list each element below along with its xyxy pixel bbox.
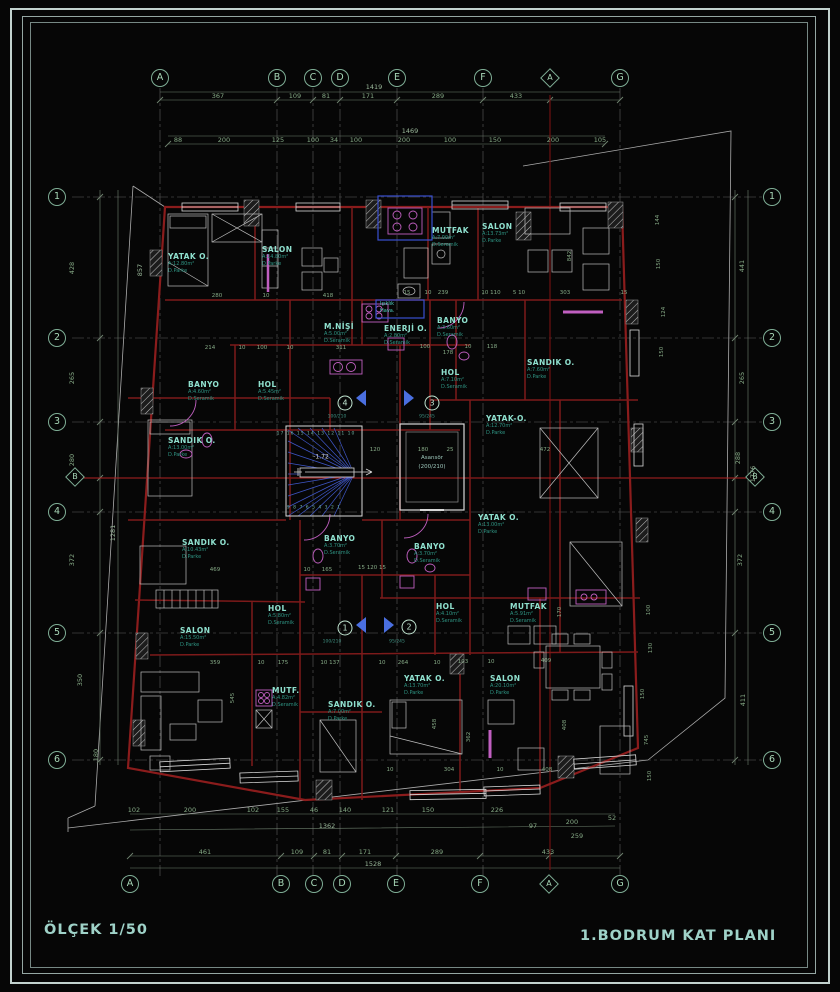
axis-left-3: 3 bbox=[48, 413, 66, 431]
room-label-mutf-bl: MUTF.A:4.82m²D.Seramik bbox=[272, 686, 300, 708]
dim: 52 bbox=[608, 814, 616, 822]
dim: 144 bbox=[655, 215, 661, 226]
dim: 125 bbox=[272, 136, 284, 144]
dim: 88 bbox=[174, 136, 182, 144]
axis-right-4: 4 bbox=[763, 503, 781, 521]
dim: 372 bbox=[68, 554, 76, 566]
dim: 469 bbox=[210, 567, 221, 573]
dim: 178 bbox=[443, 350, 454, 356]
axis-top-d: D bbox=[331, 69, 349, 87]
dim: 10 bbox=[434, 660, 441, 666]
dim: 102 bbox=[128, 806, 140, 814]
dim: 200 bbox=[398, 136, 410, 144]
dim: 239 bbox=[438, 290, 449, 296]
room-label-yatak-bc: YATAK O.A:13.70m²D.Parke bbox=[404, 674, 445, 696]
dim: 180 bbox=[92, 749, 100, 761]
scale-label: ÖLÇEK 1/50 bbox=[44, 922, 148, 938]
door-tag: 100/210 bbox=[328, 415, 347, 420]
dim: 359 bbox=[210, 660, 221, 666]
dim: 10 bbox=[379, 660, 386, 666]
room-label-banyo-tr: BANYOA:3.60m²D.Seramik bbox=[437, 316, 468, 338]
dim: 280 bbox=[68, 454, 76, 466]
room-label-mutfak-br: MUTFAKA:5.91m²D.Seramik bbox=[510, 602, 547, 624]
room-label-hol-br: HOLA:4.10m²D.Seramik bbox=[436, 602, 462, 624]
dim: 265 bbox=[738, 372, 746, 384]
room-label-sandik-bc: SANDIK O.A:7.00m²D.Parke bbox=[328, 700, 376, 722]
dim: 362 bbox=[466, 732, 472, 743]
drawing-sheet: A B C D E F A G A B C D E F A G 1 2 3 B … bbox=[0, 0, 840, 992]
dim: 124 bbox=[661, 307, 667, 318]
room-label-sandik-ml: SANDIK O.A:13.00m²D.Parke bbox=[168, 436, 216, 458]
door-tag: 95/245 bbox=[419, 415, 435, 420]
unit-circle-4: 4 bbox=[338, 396, 353, 411]
dim: 15 bbox=[621, 290, 628, 296]
room-label-hol-r: HOLA:7.10m²D.Seramik bbox=[441, 368, 467, 390]
dim: 150 bbox=[656, 259, 662, 270]
dim: 433 bbox=[510, 92, 522, 100]
room-label-sandik-r: SANDIK O.A:7.60m²D.Parke bbox=[527, 358, 575, 380]
stair-numbers-top: 17 16 15 14 13 12 11 10 bbox=[277, 432, 356, 437]
dim: 458 bbox=[432, 719, 438, 730]
dim: 10 bbox=[263, 293, 270, 299]
dim: 10 bbox=[239, 345, 246, 351]
dim: 120 bbox=[370, 447, 381, 453]
axis-left-1: 1 bbox=[48, 188, 66, 206]
door-arrows bbox=[356, 390, 414, 633]
dim: 280 bbox=[212, 293, 223, 299]
dim-total: 1528 bbox=[365, 860, 382, 868]
dim: 461 bbox=[199, 848, 211, 856]
dimension-lines bbox=[97, 92, 748, 868]
dim: 350 bbox=[76, 674, 84, 686]
room-label-banyo-l: BANYOA:4.60m²D.Seramik bbox=[188, 380, 219, 402]
room-label-salon-t: SALONA:14.80m²D.Parke bbox=[262, 245, 292, 267]
dim: 472 bbox=[540, 447, 551, 453]
room-label-salon-tr: SALONA:13.73m²D.Parke bbox=[482, 222, 512, 244]
dim: 150 bbox=[647, 771, 653, 782]
room-label-mutfak-t: MUTFAKA:7.00m²D.Seramik bbox=[432, 226, 469, 248]
room-label-banyo-c2: BANYOA:3.70m²D.Seramik bbox=[414, 542, 445, 564]
page-title: 1.BODRUM KAT PLANI bbox=[580, 928, 776, 944]
room-label-banyo-c1: BANYOA:3.70m²D.Seramik bbox=[324, 534, 355, 556]
dim: 311 bbox=[336, 345, 347, 351]
dim: 81 bbox=[322, 92, 330, 100]
dim: 372 bbox=[736, 554, 744, 566]
dim: 10 137 bbox=[320, 660, 339, 666]
elevator-label: Asansör bbox=[421, 455, 443, 461]
axis-top-a: A bbox=[151, 69, 169, 87]
dim: 408 bbox=[542, 767, 553, 773]
dim-total: 1469 bbox=[402, 127, 419, 135]
room-label-hol-bl: HOLA:5.80m²D.Seramik bbox=[268, 604, 294, 626]
axis-bottom-c: C bbox=[305, 875, 323, 893]
dim: 226 bbox=[491, 806, 503, 814]
unit-circle-3: 3 bbox=[425, 396, 440, 411]
room-label-mnisi: M.NİŞİA:5.00m²D.Seramik bbox=[324, 322, 354, 344]
dim: 303 bbox=[560, 290, 571, 296]
dim: 10 bbox=[465, 344, 472, 350]
dim: 10 bbox=[497, 767, 504, 773]
dim: 150 bbox=[640, 689, 646, 700]
dim: 5 10 bbox=[513, 290, 525, 296]
dim: 10 bbox=[425, 290, 432, 296]
dim: 409 bbox=[541, 658, 552, 664]
dim: 171 bbox=[362, 92, 374, 100]
axis-right-6: 6 bbox=[763, 751, 781, 769]
dim: 10 bbox=[304, 567, 311, 573]
dim: 180 bbox=[418, 447, 429, 453]
dim: 200 bbox=[547, 136, 559, 144]
dim: 155 bbox=[277, 806, 289, 814]
dim: 100 bbox=[307, 136, 319, 144]
dim: 842 bbox=[567, 251, 573, 262]
dim: 10 bbox=[387, 767, 394, 773]
dim: 100 bbox=[350, 136, 362, 144]
axis-top-b: B bbox=[268, 69, 286, 87]
dim: 10 bbox=[488, 659, 495, 665]
dim: 150 bbox=[659, 347, 665, 358]
dim: 200 bbox=[218, 136, 230, 144]
dim: 441 bbox=[738, 260, 746, 272]
dim: 100 bbox=[257, 345, 268, 351]
axis-bottom-a: A bbox=[121, 875, 139, 893]
room-label-yatak-tl: YATAK O.A:12.80m²D.Parke bbox=[168, 252, 209, 274]
dim: 265 bbox=[68, 372, 76, 384]
dim: 165 bbox=[322, 567, 333, 573]
dim-total: 857 bbox=[136, 264, 144, 276]
axis-left-2: 2 bbox=[48, 329, 66, 347]
dim: 10 bbox=[287, 345, 294, 351]
door-tag: 95/245 bbox=[389, 640, 405, 645]
dim: 25 bbox=[447, 447, 454, 453]
dim: 118 bbox=[487, 344, 498, 350]
dim: 433 bbox=[542, 848, 554, 856]
axis-bottom-d: D bbox=[333, 875, 351, 893]
axis-top-e: E bbox=[388, 69, 406, 87]
dim-total: 1362 bbox=[319, 822, 336, 830]
stair-numbers-bottom: 9 8 7 6 5 4 3 2 1 bbox=[287, 506, 341, 511]
dim: 100 bbox=[646, 605, 652, 616]
dim: 10 bbox=[258, 660, 265, 666]
dim: 97 bbox=[529, 822, 537, 830]
axis-right-2: 2 bbox=[763, 329, 781, 347]
dim: 428 bbox=[68, 262, 76, 274]
axis-bottom-g: G bbox=[611, 875, 629, 893]
dim: 367 bbox=[212, 92, 224, 100]
plan-linework bbox=[0, 0, 840, 992]
dim: 259 bbox=[571, 832, 583, 840]
room-label-salon-bl: SALONA:15.50m²D.Parke bbox=[180, 626, 210, 648]
axis-top-g: G bbox=[611, 69, 629, 87]
dim: 103 bbox=[458, 659, 469, 665]
axis-right-1: 1 bbox=[763, 188, 781, 206]
dim: 545 bbox=[230, 693, 236, 704]
axis-left-6: 6 bbox=[48, 751, 66, 769]
dim: 121 bbox=[382, 806, 394, 814]
dim: 15 bbox=[404, 290, 411, 296]
door-tag: 100/210 bbox=[323, 640, 342, 645]
axis-top-f: F bbox=[474, 69, 492, 87]
dim: 10 110 bbox=[481, 290, 500, 296]
axis-bottom-b: B bbox=[272, 875, 290, 893]
axis-right-5: 5 bbox=[763, 624, 781, 642]
dim: 408 bbox=[562, 720, 568, 731]
stair-level-label: -1.72 bbox=[313, 454, 329, 461]
dim: 264 bbox=[398, 660, 409, 666]
dim: 289 bbox=[431, 848, 443, 856]
dim: 34 bbox=[330, 136, 338, 144]
dim: 418 bbox=[323, 293, 334, 299]
axis-bottom-e: E bbox=[387, 875, 405, 893]
column-blocks bbox=[133, 200, 648, 800]
room-label-sandik-bl: SANDIK O.A:10.43m²D.Parke bbox=[182, 538, 230, 560]
room-label-yatak-mr2: YATAK O.A:13.00m²D.Parke bbox=[478, 513, 519, 535]
dim: 81 bbox=[323, 848, 331, 856]
dim: 171 bbox=[359, 848, 371, 856]
axis-right-3: 3 bbox=[763, 413, 781, 431]
dim: 411 bbox=[739, 694, 747, 706]
room-label-enerji: ENERJİ O.A:2.80m²D.Seramik bbox=[384, 324, 427, 346]
dim: 140 bbox=[339, 806, 351, 814]
dim: 200 bbox=[184, 806, 196, 814]
axis-left-4: 4 bbox=[48, 503, 66, 521]
dim: 109 bbox=[289, 92, 301, 100]
axis-bottom-f: F bbox=[471, 875, 489, 893]
axis-left-5: 5 bbox=[48, 624, 66, 642]
elevator-size-label: (200/210) bbox=[418, 464, 445, 470]
unit-circle-2: 2 bbox=[402, 620, 417, 635]
dim: 304 bbox=[444, 767, 455, 773]
unit-circle-1: 1 bbox=[338, 621, 353, 636]
dim: 105 bbox=[594, 136, 606, 144]
dim: 150 bbox=[489, 136, 501, 144]
dim: 102 bbox=[247, 806, 259, 814]
dim: 200 bbox=[566, 818, 578, 826]
dim: 214 bbox=[205, 345, 216, 351]
axis-top-c: C bbox=[304, 69, 322, 87]
dim: 130 bbox=[648, 643, 654, 654]
room-label-salon-br: SALONA:20.10m²D.Parke bbox=[490, 674, 520, 696]
dim: 289 bbox=[432, 92, 444, 100]
airshaft-label: IşıklıkHava. bbox=[380, 301, 394, 314]
dim: 46 bbox=[310, 806, 318, 814]
dim: 170 bbox=[557, 607, 563, 618]
dim: 745 bbox=[644, 735, 650, 746]
room-label-hol-l: HOLA:5.45m²D.Seramik bbox=[258, 380, 284, 402]
dim: 109 bbox=[291, 848, 303, 856]
dim: 150 bbox=[422, 806, 434, 814]
dim: 100 bbox=[444, 136, 456, 144]
dim: 175 bbox=[278, 660, 289, 666]
dim-total: 1419 bbox=[366, 83, 383, 91]
room-label-yatak-mr1: YATAK-O.A:12.70m²D.Parke bbox=[486, 414, 527, 436]
dim-total: 1776 bbox=[749, 466, 757, 483]
dim: 288 bbox=[734, 452, 742, 464]
dim: 15 120 15 bbox=[358, 565, 386, 571]
dim-total: 1281 bbox=[109, 525, 117, 542]
